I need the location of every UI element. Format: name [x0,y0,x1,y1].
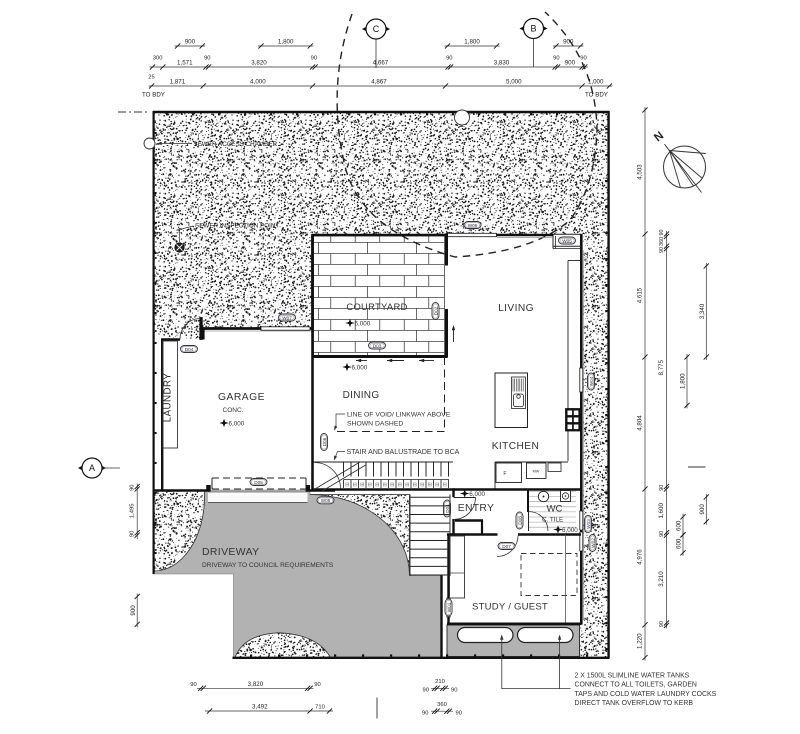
svg-text:1,495: 1,495 [130,504,136,519]
svg-text:D05: D05 [254,480,263,485]
svg-text:DIRECT TANK OVERFLOW TO KERB: DIRECT TANK OVERFLOW TO KERB [575,700,694,707]
svg-text:W02: W02 [590,538,595,548]
svg-text:90: 90 [311,56,317,62]
svg-text:D08: D08 [517,516,522,525]
svg-text:ENTRY: ENTRY [458,503,495,514]
svg-text:90: 90 [204,56,210,62]
svg-text:6,000: 6,000 [352,365,368,372]
svg-text:D04: D04 [185,347,194,352]
svg-text:90: 90 [580,56,586,62]
svg-text:90: 90 [314,682,320,688]
svg-text:900: 900 [185,39,196,46]
svg-text:W07: W07 [282,315,292,320]
svg-text:SHOWN DASHED: SHOWN DASHED [347,421,403,428]
svg-text:90: 90 [659,485,665,491]
svg-text:W01: W01 [446,602,451,612]
svg-text:90: 90 [190,682,196,688]
svg-text:F: F [503,471,506,477]
svg-text:90: 90 [553,56,559,62]
svg-text:GARAGE: GARAGE [218,392,265,403]
svg-text:KITCHEN: KITCHEN [492,441,540,452]
svg-text:N: N [652,130,666,145]
svg-text:MW: MW [533,470,540,474]
svg-text:3,820: 3,820 [251,59,267,66]
svg-text:4,976: 4,976 [637,549,644,565]
svg-text:TO BDY: TO BDY [142,92,165,99]
svg-text:1,220: 1,220 [637,633,644,649]
svg-text:900: 900 [699,504,706,515]
svg-text:1,000: 1,000 [588,79,604,86]
svg-text:1,800: 1,800 [464,39,480,46]
svg-text:DINING: DINING [343,390,380,401]
svg-text:C. TILE: C. TILE [542,517,563,524]
svg-text:STAIR AND BALUSTRADE TO BCA: STAIR AND BALUSTRADE TO BCA [347,449,460,456]
svg-text:90: 90 [456,710,462,716]
svg-text:4,867: 4,867 [371,79,387,86]
svg-text:300: 300 [153,56,163,62]
svg-text:210: 210 [435,679,445,685]
svg-text:900: 900 [565,59,576,66]
svg-text:90: 90 [659,230,665,236]
svg-text:COURTYARD: COURTYARD [346,301,407,312]
svg-text:CONC.: CONC. [223,407,244,414]
svg-text:CONNECT TO ALL TOILETS, GARDEN: CONNECT TO ALL TOILETS, GARDEN [575,682,697,689]
svg-text:W04: W04 [589,376,594,386]
svg-text:B: B [530,24,536,34]
svg-text:DRIVEWAY TO COUNCIL REQUIREMEN: DRIVEWAY TO COUNCIL REQUIREMENTS [202,562,334,569]
svg-text:TO BDY: TO BDY [585,92,608,99]
svg-text:8,775: 8,775 [658,359,665,375]
svg-text:6,000: 6,000 [355,321,371,328]
svg-text:25: 25 [148,75,154,81]
svg-text:1,800: 1,800 [680,373,687,389]
svg-text:90: 90 [446,56,452,62]
svg-text:W05: W05 [562,238,572,243]
svg-text:710: 710 [315,705,325,711]
svg-text:D06: D06 [322,437,327,446]
svg-text:W03: W03 [586,519,591,529]
svg-text:1,871: 1,871 [170,79,186,86]
svg-text:LIVING: LIVING [498,303,534,314]
svg-text:A: A [89,463,95,473]
svg-text:W08: W08 [321,498,331,503]
svg-text:3,820: 3,820 [248,681,264,688]
svg-text:D02: D02 [433,306,438,315]
svg-text:W06: W06 [468,223,478,228]
svg-text:D01: D01 [445,504,450,513]
svg-text:SEWER ACCESS CHAMBER: SEWER ACCESS CHAMBER [194,141,278,148]
svg-text:LINE OF VOID/ LINKWAY ABOVE: LINE OF VOID/ LINKWAY ABOVE [347,412,451,419]
svg-text:90: 90 [584,256,590,262]
svg-text:C: C [373,24,380,34]
svg-text:TAPS AND COLD WATER LAUNDRY CO: TAPS AND COLD WATER LAUNDRY COCKS [575,691,717,698]
svg-text:STUDY / GUEST: STUDY / GUEST [472,602,548,613]
svg-text:DRIVEWAY: DRIVEWAY [202,547,259,558]
svg-text:SEWER INSPECTION POINT: SEWER INSPECTION POINT [195,223,279,230]
svg-text:4,804: 4,804 [637,415,644,431]
svg-text:90: 90 [451,688,457,694]
svg-text:90: 90 [130,531,136,537]
svg-text:900: 900 [563,39,574,46]
svg-text:90: 90 [659,621,665,627]
svg-text:3,340: 3,340 [699,303,706,319]
svg-text:6,000: 6,000 [229,421,245,428]
svg-text:1,600: 1,600 [658,502,665,518]
svg-text:LAUNDRY: LAUNDRY [163,373,174,423]
svg-text:6,000: 6,000 [469,491,485,498]
svg-text:D03: D03 [373,343,382,348]
svg-text:4,000: 4,000 [250,79,266,86]
svg-text:4,503: 4,503 [637,164,644,180]
svg-text:90: 90 [422,710,428,716]
svg-text:600: 600 [676,538,683,549]
svg-text:360: 360 [659,237,665,246]
svg-text:90: 90 [423,688,429,694]
svg-text:360: 360 [437,702,447,708]
svg-text:D07: D07 [502,544,511,549]
svg-text:WC: WC [547,504,563,515]
svg-text:90: 90 [659,247,665,253]
svg-text:1,571: 1,571 [177,59,193,66]
svg-text:1,800: 1,800 [278,39,294,46]
svg-text:5,000: 5,000 [506,79,522,86]
svg-text:4,615: 4,615 [637,287,644,303]
svg-text:90: 90 [130,484,136,490]
svg-text:600: 600 [676,520,683,531]
svg-text:3,210: 3,210 [658,571,665,587]
svg-text:4,667: 4,667 [373,59,389,66]
svg-text:3,830: 3,830 [494,59,510,66]
svg-text:3,492: 3,492 [252,704,268,711]
svg-text:900: 900 [130,605,137,616]
svg-text:2 X 1500L SLIMLINE WATER TANK: 2 X 1500L SLIMLINE WATER TANKS [575,673,690,680]
svg-text:90: 90 [659,531,665,537]
svg-text:6,000: 6,000 [562,527,578,534]
